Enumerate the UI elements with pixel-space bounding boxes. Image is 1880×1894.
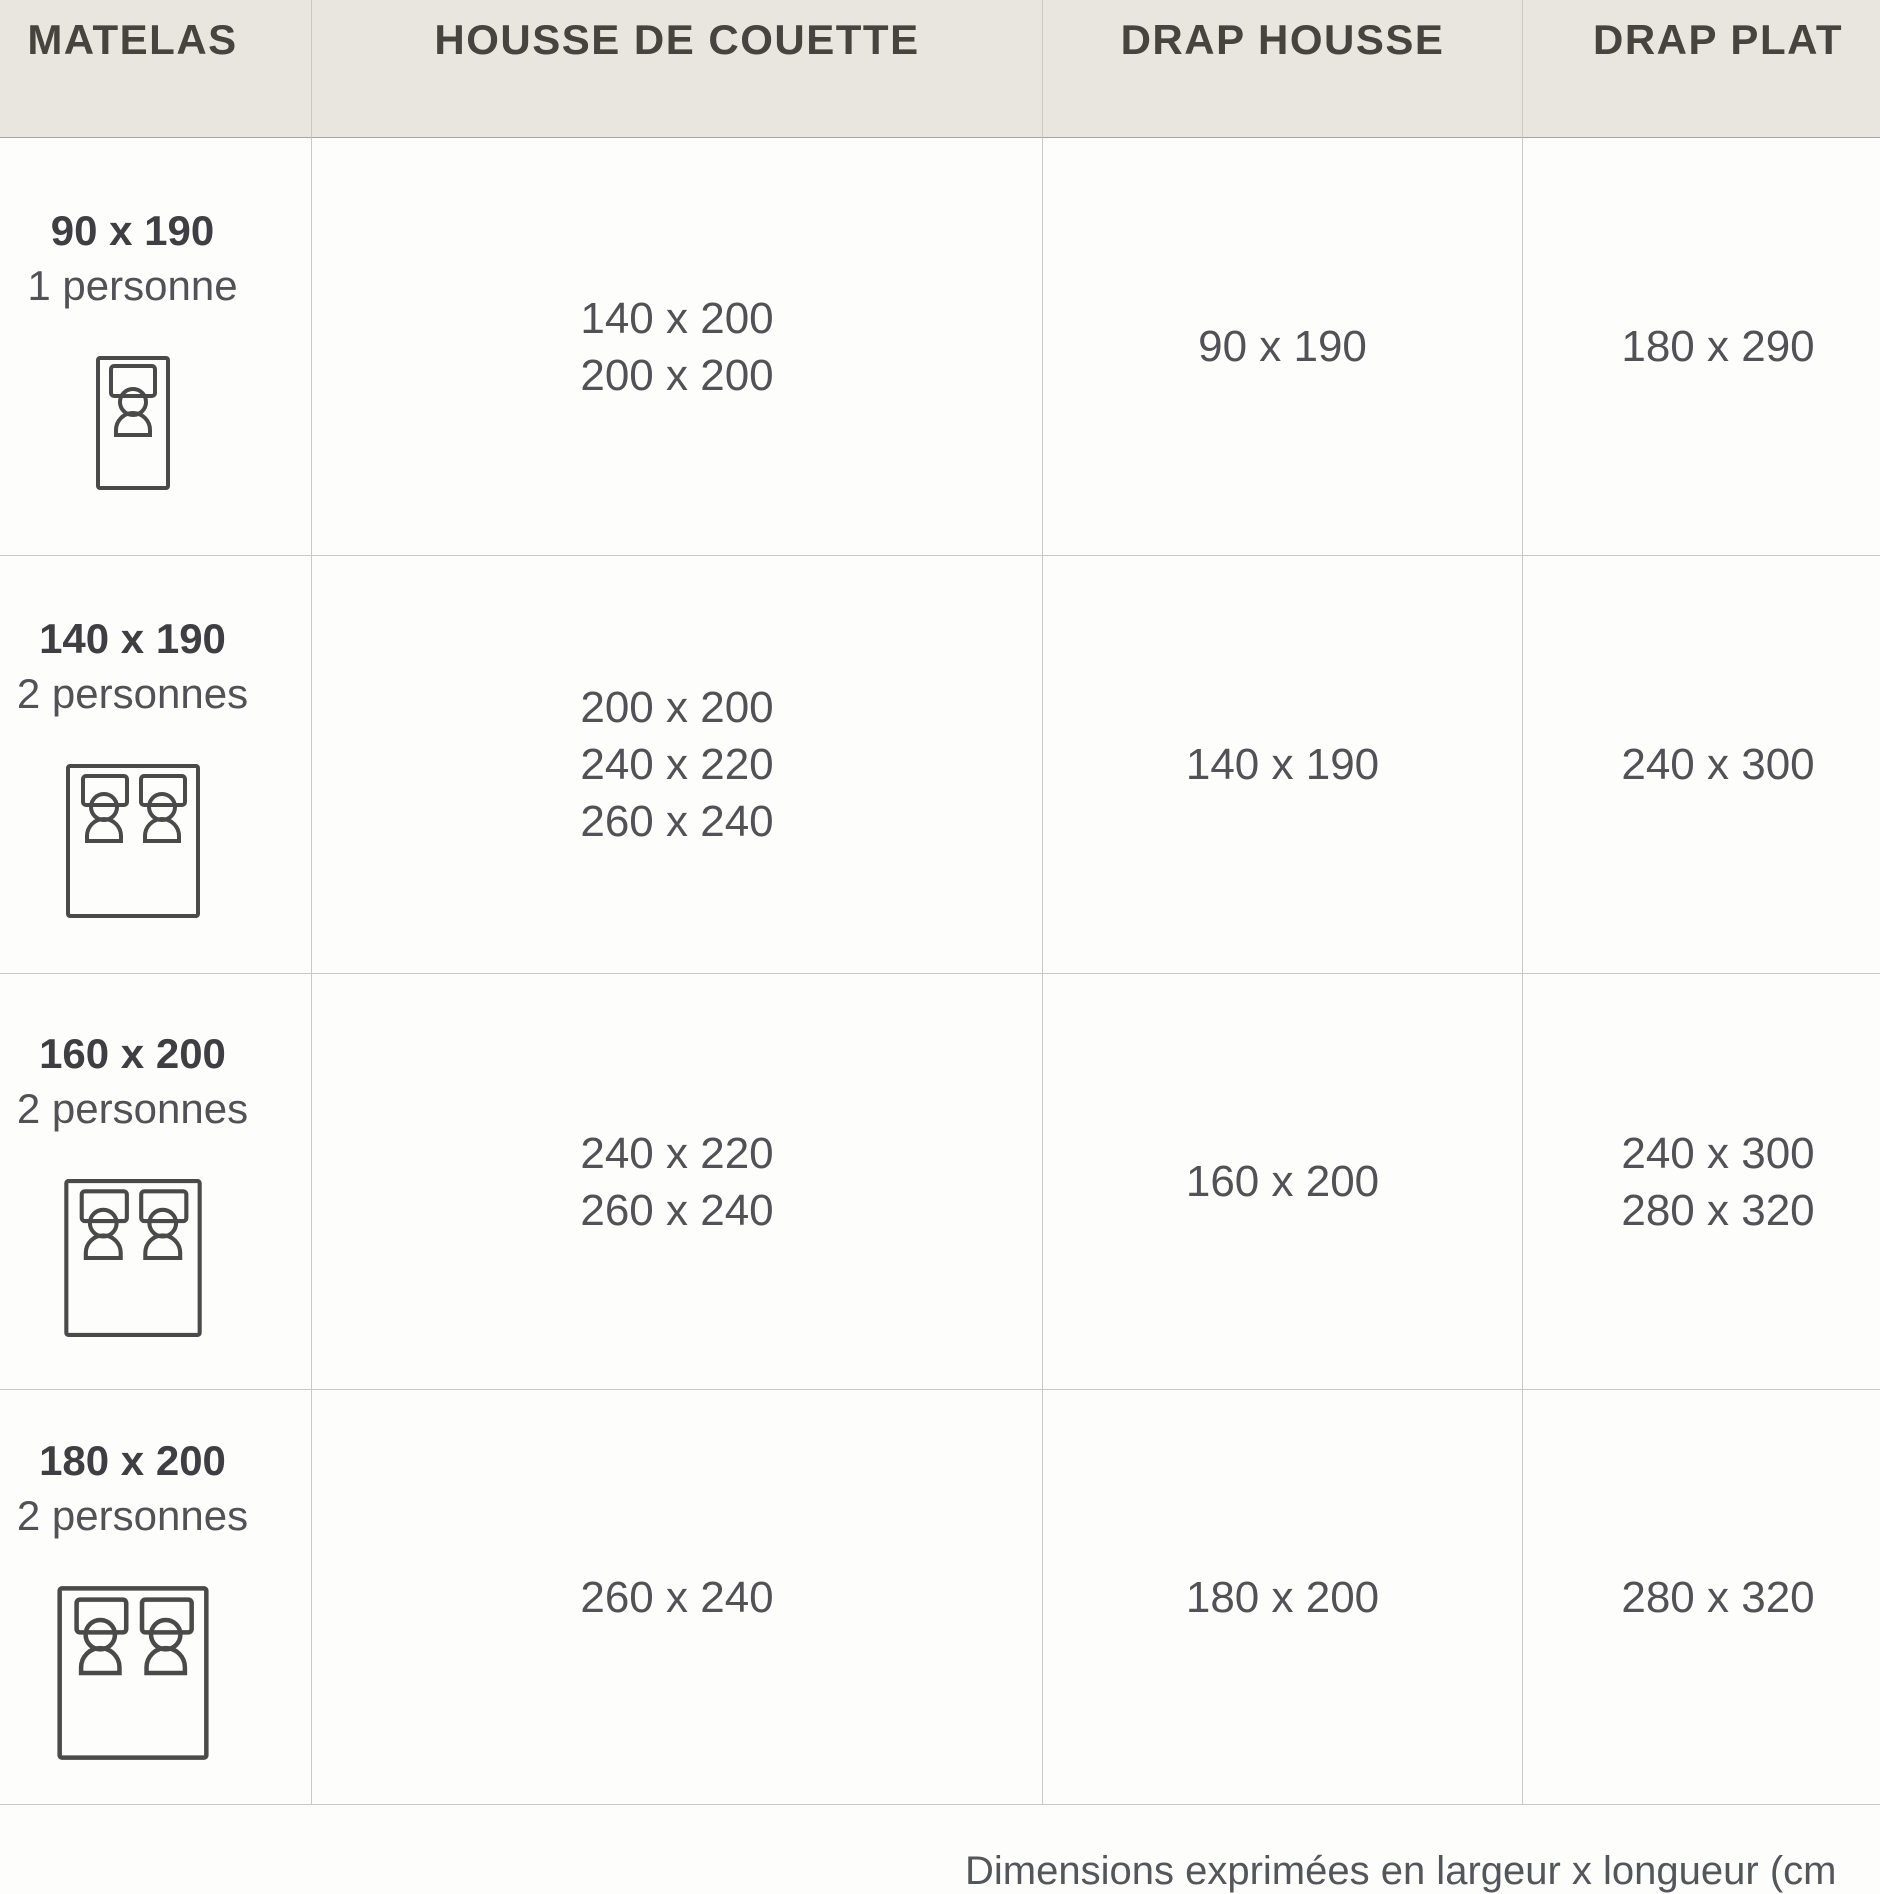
cell-housse-de-couette-row2: 200 x 200 240 x 220 260 x 240 xyxy=(312,556,1043,974)
cell-matelas-row3: 160 x 200 2 personnes xyxy=(0,974,312,1390)
cell-matelas-row4: 180 x 200 2 personnes xyxy=(0,1390,312,1805)
cell-housse-de-couette-row4: 260 x 240 xyxy=(312,1390,1043,1805)
bed-linen-size-table: MATELAS HOUSSE DE COUETTE DRAP HOUSSE DR… xyxy=(0,0,1880,1805)
matelas-size: 180 x 200 xyxy=(39,1433,226,1488)
dimension: 180 x 200 xyxy=(1186,1569,1379,1626)
dimension: 200 x 200 xyxy=(580,679,773,736)
cell-drap-housse-row1: 90 x 190 xyxy=(1043,138,1523,556)
dimension: 180 x 290 xyxy=(1621,318,1814,375)
dimension: 240 x 300 xyxy=(1621,736,1814,793)
double-bed-icon xyxy=(59,1178,207,1338)
cell-drap-plat-row4: 280 x 320 xyxy=(1523,1390,1880,1805)
column-header-drap-housse: DRAP HOUSSE xyxy=(1043,0,1523,138)
dimension: 140 x 200 xyxy=(580,290,773,347)
dimension: 260 x 240 xyxy=(580,1182,773,1239)
cell-housse-de-couette-row1: 140 x 200 200 x 200 xyxy=(312,138,1043,556)
matelas-capacity: 2 personnes xyxy=(17,1081,248,1136)
matelas-size: 160 x 200 xyxy=(39,1026,226,1081)
dimension: 240 x 220 xyxy=(580,736,773,793)
dimension: 160 x 200 xyxy=(1186,1153,1379,1210)
cell-drap-plat-row1: 180 x 290 xyxy=(1523,138,1880,556)
dimension: 90 x 190 xyxy=(1198,318,1367,375)
double-bed-icon xyxy=(65,763,201,919)
dimension: 200 x 200 xyxy=(580,347,773,404)
column-header-drap-plat: DRAP PLAT xyxy=(1523,0,1880,138)
cell-drap-housse-row4: 180 x 200 xyxy=(1043,1390,1523,1805)
dimension: 260 x 240 xyxy=(580,1569,773,1626)
matelas-size: 90 x 190 xyxy=(51,203,215,258)
cell-matelas-row1: 90 x 190 1 personne xyxy=(0,138,312,556)
dimension: 140 x 190 xyxy=(1186,736,1379,793)
dimensions-note: Dimensions exprimées en largeur x longue… xyxy=(965,1849,1836,1894)
cell-drap-housse-row3: 160 x 200 xyxy=(1043,974,1523,1390)
column-header-housse-de-couette: HOUSSE DE COUETTE xyxy=(312,0,1043,138)
matelas-capacity: 1 personne xyxy=(27,258,237,313)
cell-drap-plat-row2: 240 x 300 xyxy=(1523,556,1880,974)
single-bed-icon xyxy=(95,355,171,491)
dimension: 240 x 300 xyxy=(1621,1125,1814,1182)
dimension: 260 x 240 xyxy=(580,793,773,850)
cell-housse-de-couette-row3: 240 x 220 260 x 240 xyxy=(312,974,1043,1390)
matelas-size: 140 x 190 xyxy=(39,611,226,666)
dimension: 280 x 320 xyxy=(1621,1182,1814,1239)
dimension: 240 x 220 xyxy=(580,1125,773,1182)
dimension: 280 x 320 xyxy=(1621,1569,1814,1626)
cell-matelas-row2: 140 x 190 2 personnes xyxy=(0,556,312,974)
column-header-matelas: MATELAS xyxy=(0,0,312,138)
cell-drap-housse-row2: 140 x 190 xyxy=(1043,556,1523,974)
matelas-capacity: 2 personnes xyxy=(17,666,248,721)
cell-drap-plat-row3: 240 x 300 280 x 320 xyxy=(1523,974,1880,1390)
double-bed-icon xyxy=(50,1585,216,1761)
matelas-capacity: 2 personnes xyxy=(17,1488,248,1543)
